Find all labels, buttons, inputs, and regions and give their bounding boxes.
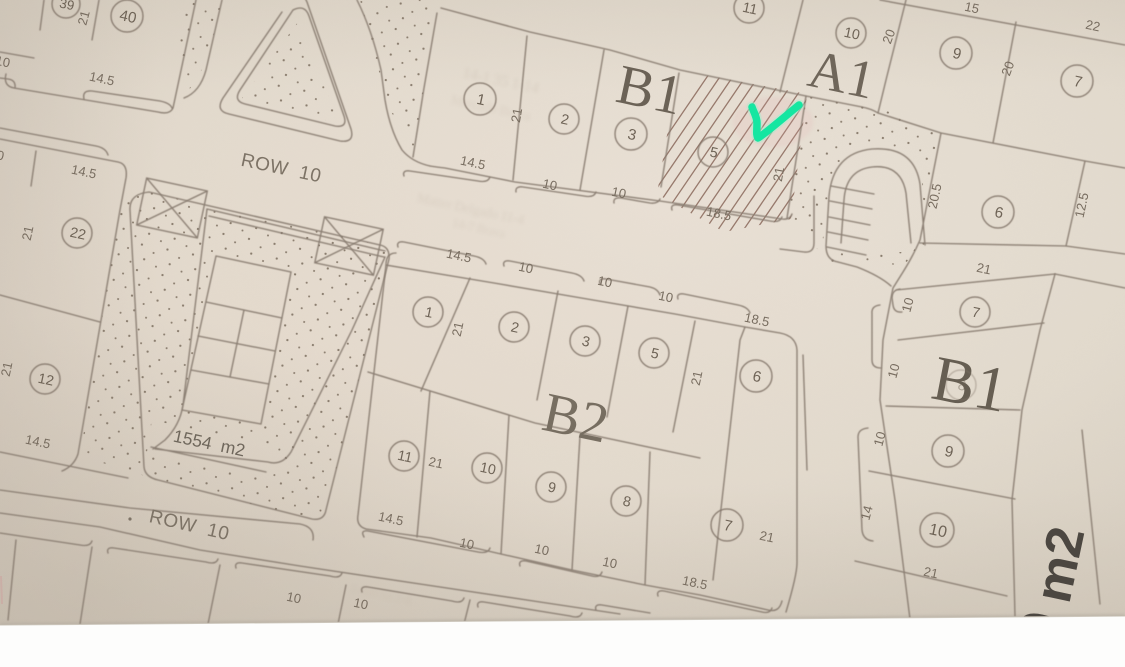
- svg-text:10: 10: [541, 176, 558, 194]
- svg-text:21: 21: [508, 107, 525, 124]
- svg-text:21: 21: [975, 260, 992, 278]
- svg-text:21: 21: [922, 564, 939, 582]
- svg-text:21: 21: [449, 320, 467, 337]
- svg-text:10: 10: [601, 554, 618, 572]
- svg-text:10: 10: [517, 259, 534, 277]
- svg-text:12: 12: [36, 371, 55, 390]
- svg-text:10: 10: [352, 595, 369, 613]
- svg-text:21: 21: [758, 528, 775, 546]
- svg-text:10: 10: [842, 25, 861, 44]
- svg-text:21: 21: [427, 454, 444, 472]
- svg-text:10: 10: [657, 288, 674, 306]
- svg-text:10: 10: [533, 541, 550, 559]
- svg-text:21: 21: [688, 369, 706, 386]
- svg-text:10: 10: [596, 273, 613, 291]
- svg-text:10: 10: [610, 184, 627, 202]
- svg-text:B1: B1: [927, 342, 1014, 426]
- svg-text:22: 22: [1084, 17, 1101, 35]
- svg-text:21: 21: [770, 166, 787, 183]
- svg-text:22: 22: [68, 225, 87, 244]
- svg-text:21: 21: [19, 224, 37, 241]
- svg-text:10: 10: [478, 460, 497, 479]
- svg-text:10: 10: [927, 520, 948, 541]
- svg-text:10: 10: [285, 589, 302, 607]
- svg-text:40: 40: [118, 7, 138, 27]
- svg-text:10: 10: [458, 535, 475, 553]
